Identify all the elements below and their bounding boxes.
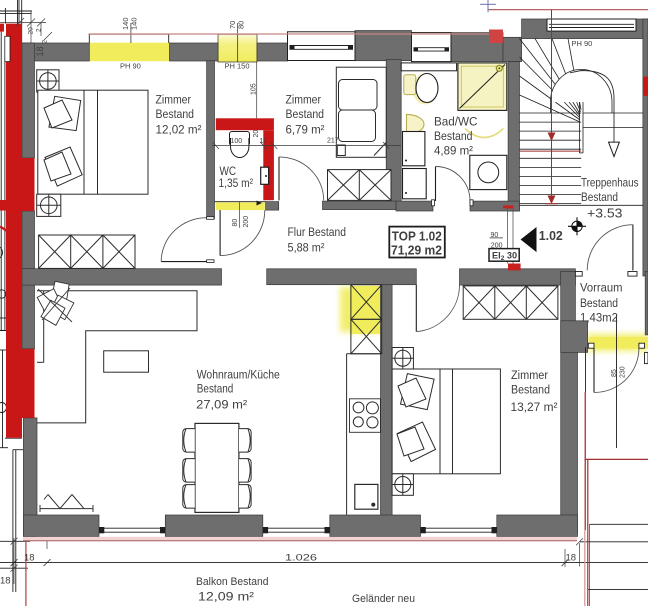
svg-text:18: 18 bbox=[566, 553, 577, 564]
svg-text:1.026: 1.026 bbox=[285, 553, 317, 564]
svg-text:4,89 m²: 4,89 m² bbox=[434, 144, 473, 158]
svg-text:12,02 m²: 12,02 m² bbox=[156, 123, 202, 137]
svg-text:Bestand: Bestand bbox=[581, 190, 618, 204]
svg-text:Zimmer: Zimmer bbox=[286, 92, 322, 106]
svg-text:2: 2 bbox=[36, 28, 43, 32]
svg-text:230: 230 bbox=[620, 366, 627, 378]
svg-text:105: 105 bbox=[251, 83, 258, 95]
svg-text:71,29 m2: 71,29 m2 bbox=[391, 244, 442, 258]
svg-text:+3.53: +3.53 bbox=[587, 206, 623, 221]
svg-text:2: 2 bbox=[42, 40, 49, 44]
svg-text:Treppenhaus: Treppenhaus bbox=[581, 176, 639, 190]
svg-text:Bad/WC: Bad/WC bbox=[434, 114, 478, 128]
svg-text:PH 90: PH 90 bbox=[572, 39, 593, 48]
svg-text:18: 18 bbox=[0, 576, 11, 587]
svg-text:Bestand: Bestand bbox=[197, 382, 234, 396]
svg-text:Bestand: Bestand bbox=[156, 107, 195, 121]
svg-text:PH 90: PH 90 bbox=[120, 62, 141, 71]
svg-text:Bestand: Bestand bbox=[511, 382, 550, 396]
svg-text:Bestand: Bestand bbox=[434, 129, 473, 143]
svg-text:Wohnraum/Küche: Wohnraum/Küche bbox=[197, 368, 280, 382]
svg-text:27,09 m²: 27,09 m² bbox=[196, 398, 247, 412]
svg-text:18: 18 bbox=[24, 553, 35, 564]
svg-text:Balkon Bestand: Balkon Bestand bbox=[196, 576, 269, 588]
svg-text:1.02: 1.02 bbox=[539, 228, 563, 243]
svg-text:13,27 m²: 13,27 m² bbox=[511, 400, 558, 414]
svg-text:PH 150: PH 150 bbox=[225, 62, 250, 71]
svg-text:TOP 1.02: TOP 1.02 bbox=[392, 230, 442, 244]
svg-text:5,88 m²: 5,88 m² bbox=[288, 241, 325, 255]
svg-text:Geländer neu: Geländer neu bbox=[352, 593, 415, 605]
svg-text:1,35 m²: 1,35 m² bbox=[219, 176, 254, 190]
svg-text:20: 20 bbox=[253, 130, 260, 138]
svg-text:11: 11 bbox=[260, 138, 267, 145]
svg-text:Bestand: Bestand bbox=[286, 107, 325, 121]
svg-text:100: 100 bbox=[231, 138, 243, 145]
svg-text:12,09 m²: 12,09 m² bbox=[198, 590, 254, 604]
svg-text:217: 217 bbox=[327, 138, 339, 145]
svg-text:Flur Bestand: Flur Bestand bbox=[288, 225, 347, 239]
svg-text:Bestand: Bestand bbox=[580, 296, 618, 310]
svg-text:200: 200 bbox=[491, 243, 503, 250]
svg-text:1,43m2: 1,43m2 bbox=[580, 311, 618, 325]
svg-text:80: 80 bbox=[232, 219, 239, 227]
svg-text:Zimmer: Zimmer bbox=[511, 368, 548, 382]
svg-text:90: 90 bbox=[491, 232, 499, 239]
svg-text:85: 85 bbox=[611, 369, 618, 377]
svg-text:6,79 m²: 6,79 m² bbox=[286, 123, 325, 137]
svg-text:18: 18 bbox=[35, 46, 45, 56]
svg-text:Vorraum: Vorraum bbox=[580, 281, 623, 295]
svg-text:140: 140 bbox=[130, 17, 139, 30]
svg-text:Zimmer: Zimmer bbox=[156, 92, 192, 106]
svg-text:20: 20 bbox=[28, 27, 35, 35]
svg-text:80: 80 bbox=[237, 21, 246, 29]
svg-text:200: 200 bbox=[243, 216, 250, 228]
